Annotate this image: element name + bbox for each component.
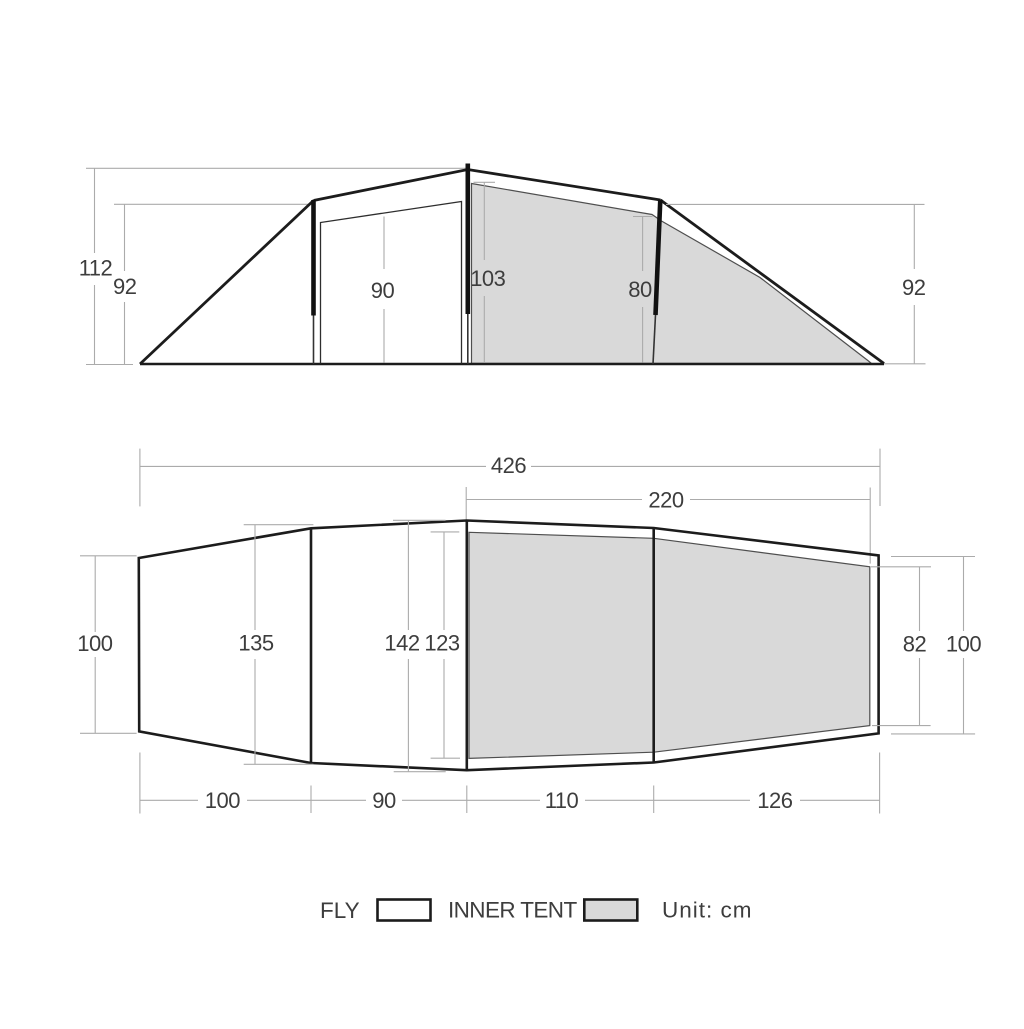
svg-text:100: 100 <box>946 632 981 657</box>
svg-text:90: 90 <box>371 278 395 303</box>
svg-text:135: 135 <box>238 631 273 656</box>
svg-text:82: 82 <box>903 632 927 657</box>
svg-text:FLY: FLY <box>320 898 360 923</box>
svg-text:123: 123 <box>424 631 459 656</box>
svg-text:142: 142 <box>384 631 419 656</box>
svg-text:90: 90 <box>372 788 396 813</box>
svg-text:426: 426 <box>491 453 526 478</box>
svg-text:80: 80 <box>628 277 652 302</box>
svg-text:INNER TENT: INNER TENT <box>448 898 577 923</box>
svg-text:100: 100 <box>205 788 240 813</box>
svg-text:112: 112 <box>79 256 113 281</box>
svg-text:103: 103 <box>470 266 505 291</box>
svg-text:110: 110 <box>545 788 579 813</box>
svg-text:Unit: cm: Unit: cm <box>662 898 753 923</box>
svg-text:126: 126 <box>757 788 792 813</box>
svg-text:92: 92 <box>113 274 137 299</box>
svg-text:100: 100 <box>77 631 112 656</box>
svg-text:220: 220 <box>648 487 683 512</box>
svg-text:92: 92 <box>902 275 926 300</box>
